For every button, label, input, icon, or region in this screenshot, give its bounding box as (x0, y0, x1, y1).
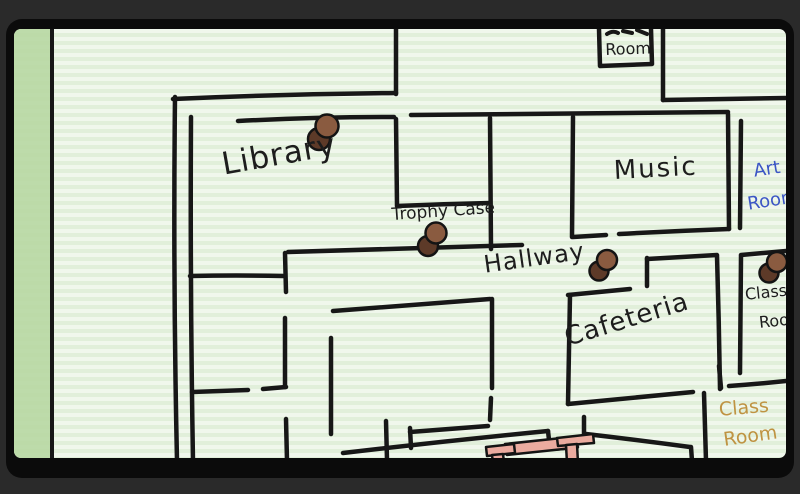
walls (173, 29, 786, 458)
music-room-label: Music (613, 152, 698, 186)
map-drawing (14, 29, 786, 458)
top-room-label: Room (605, 38, 651, 59)
game-map-screen: Library Trophy Case Music Hallway Cafete… (0, 0, 800, 494)
map-frame: Library Trophy Case Music Hallway Cafete… (6, 19, 794, 478)
class-room-pin[interactable] (760, 252, 787, 283)
trophy-case-pin[interactable] (418, 223, 447, 257)
map-canvas: Library Trophy Case Music Hallway Cafete… (14, 29, 786, 458)
art-room-label-line1: Art (752, 157, 782, 182)
map-paper[interactable]: Library Trophy Case Music Hallway Cafete… (14, 29, 786, 458)
class-room-bottom-label-line1: Class (718, 395, 770, 421)
hallway-pin[interactable] (590, 250, 618, 281)
class-room-right-label-line2: Room (758, 308, 786, 332)
clipped-text-strokes (607, 30, 647, 34)
